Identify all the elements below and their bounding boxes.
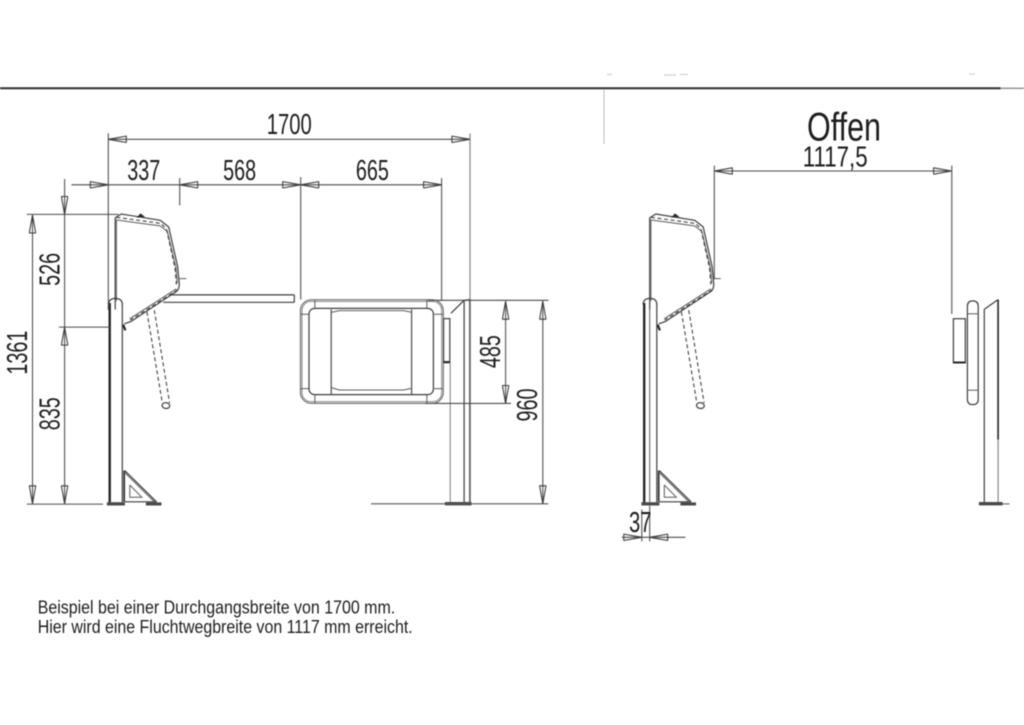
svg-text:1700: 1700	[267, 108, 312, 140]
svg-text:Hier wird eine Fluchtwegbreite: Hier wird eine Fluchtwegbreite von 1117 …	[38, 616, 413, 637]
svg-text:1361: 1361	[1, 331, 33, 375]
svg-text:Beispiel bei einer Durchgangsb: Beispiel bei einer Durchgangsbreite von …	[38, 597, 396, 618]
svg-text:665: 665	[356, 154, 389, 186]
svg-text:1117,5: 1117,5	[803, 141, 868, 173]
svg-text:835: 835	[33, 397, 65, 430]
svg-text:485: 485	[474, 335, 506, 368]
svg-text:960: 960	[511, 389, 543, 422]
svg-text:37: 37	[629, 506, 652, 538]
svg-text:568: 568	[223, 154, 256, 186]
svg-text:526: 526	[33, 253, 65, 286]
svg-text:337: 337	[127, 154, 160, 186]
